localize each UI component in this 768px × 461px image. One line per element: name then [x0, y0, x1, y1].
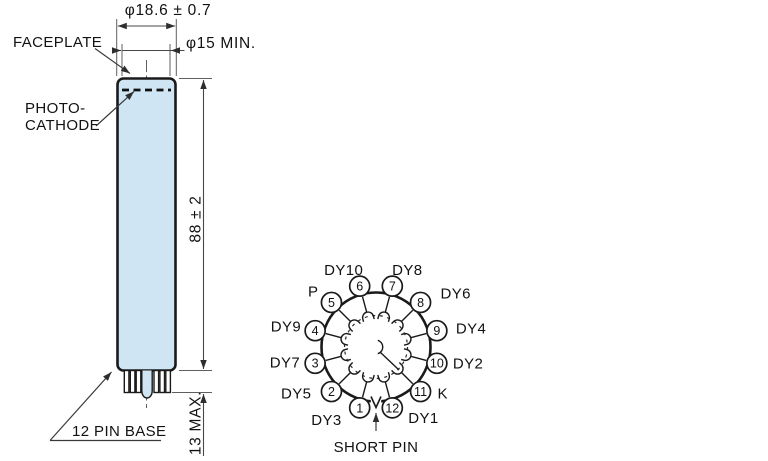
- pin-lead: [166, 371, 171, 393]
- pin-11-function-label: K: [438, 386, 448, 403]
- pin-lead: [130, 371, 135, 393]
- electrode-stem: [385, 297, 389, 312]
- pmt-outline-drawing: φ18.6 ± 0.7 φ15 MIN. 88 ± 2 13 MAX. FACE…: [0, 0, 768, 461]
- pin-4-number: 4: [312, 324, 319, 338]
- electrode-symbol-DY8: [378, 295, 395, 322]
- pin-length-label: 13 MAX.: [188, 391, 205, 455]
- exhaust-tip: [142, 371, 152, 398]
- pin-7-number: 7: [389, 280, 396, 294]
- length-dimension-label: 88 ± 2: [188, 195, 205, 242]
- electrode-stem: [339, 310, 350, 321]
- pin-6-number: 6: [356, 280, 363, 294]
- pin-1-function-label: DY3: [311, 412, 341, 429]
- electrode-cup: [340, 349, 351, 362]
- tube-body: [118, 79, 176, 371]
- pin-3-number: 3: [312, 357, 319, 371]
- pin-4-function-label: DY9: [271, 319, 301, 336]
- electrode-cup: [361, 372, 374, 383]
- dia-dimension-label: φ18.6 ± 0.7: [125, 2, 212, 19]
- pin-base-label: 12 PIN BASE: [72, 423, 166, 440]
- faceplate-dia-label: φ15 MIN.: [186, 35, 256, 52]
- pin-6-function-label: DY10: [324, 262, 363, 279]
- photocathode-label-line2: CATHODE: [25, 117, 100, 134]
- pin-11-number: 11: [414, 385, 427, 399]
- pin-lead: [160, 371, 165, 393]
- electrode-stem: [363, 297, 367, 312]
- electrode-symbol-DY1: [378, 372, 395, 399]
- electrode-stem: [411, 334, 426, 338]
- pin-10-function-label: DY2: [453, 355, 483, 372]
- electrode-stem: [326, 356, 341, 360]
- photocathode-label-line1: PHOTO-: [25, 100, 85, 117]
- electrode-stem: [411, 356, 426, 360]
- pin-lead: [124, 371, 129, 393]
- drawing-page: φ18.6 ± 0.7 φ15 MIN. 88 ± 2 13 MAX. FACE…: [0, 0, 768, 461]
- faceplate-label: FACEPLATE: [13, 34, 102, 51]
- electrode-symbol-DY4: [401, 328, 428, 345]
- electrode-stem: [339, 372, 350, 383]
- pin-9-number: 9: [433, 324, 440, 338]
- electrode-cup: [378, 372, 391, 383]
- short-pin-label: SHORT PIN: [334, 439, 419, 456]
- electrode-symbol-DY7: [324, 349, 351, 366]
- pin-10-number: 10: [430, 357, 444, 371]
- pin-12-function-label: DY1: [408, 410, 438, 427]
- pin-lead: [154, 371, 159, 393]
- center-tail-line: [381, 353, 400, 371]
- pin-8-function-label: DY6: [441, 285, 471, 302]
- pin-3-function-label: DY7: [270, 354, 300, 371]
- electrode-stem: [385, 382, 389, 397]
- electrode-stem: [363, 382, 367, 397]
- electrode-stem: [401, 310, 412, 321]
- electrode-cup: [401, 332, 412, 345]
- base-pins: [124, 371, 170, 398]
- pin-2-number: 2: [328, 385, 335, 399]
- pin-5-number: 5: [328, 296, 335, 310]
- electrode-symbol-DY10: [357, 295, 374, 322]
- electrode-cup: [378, 311, 391, 322]
- pin-1-number: 1: [356, 401, 363, 415]
- pin-5-function-label: P: [308, 283, 318, 300]
- pin-7-function-label: DY8: [392, 262, 422, 279]
- faceplate-leader: [95, 49, 130, 74]
- electrode-symbol-DY2: [401, 349, 428, 366]
- pin-8-number: 8: [417, 296, 424, 310]
- electrode-symbol-DY9: [324, 328, 351, 345]
- electrode-stem: [326, 334, 341, 338]
- pin-lead: [136, 371, 141, 393]
- electrode-symbol-DY3: [357, 372, 374, 399]
- anode-center-symbol: [378, 340, 383, 353]
- pin-12-number: 12: [385, 401, 399, 415]
- electrode-cup: [361, 311, 374, 322]
- pin-9-function-label: DY4: [456, 321, 486, 338]
- pin-2-function-label: DY5: [281, 386, 311, 403]
- electrode-stem: [401, 372, 412, 383]
